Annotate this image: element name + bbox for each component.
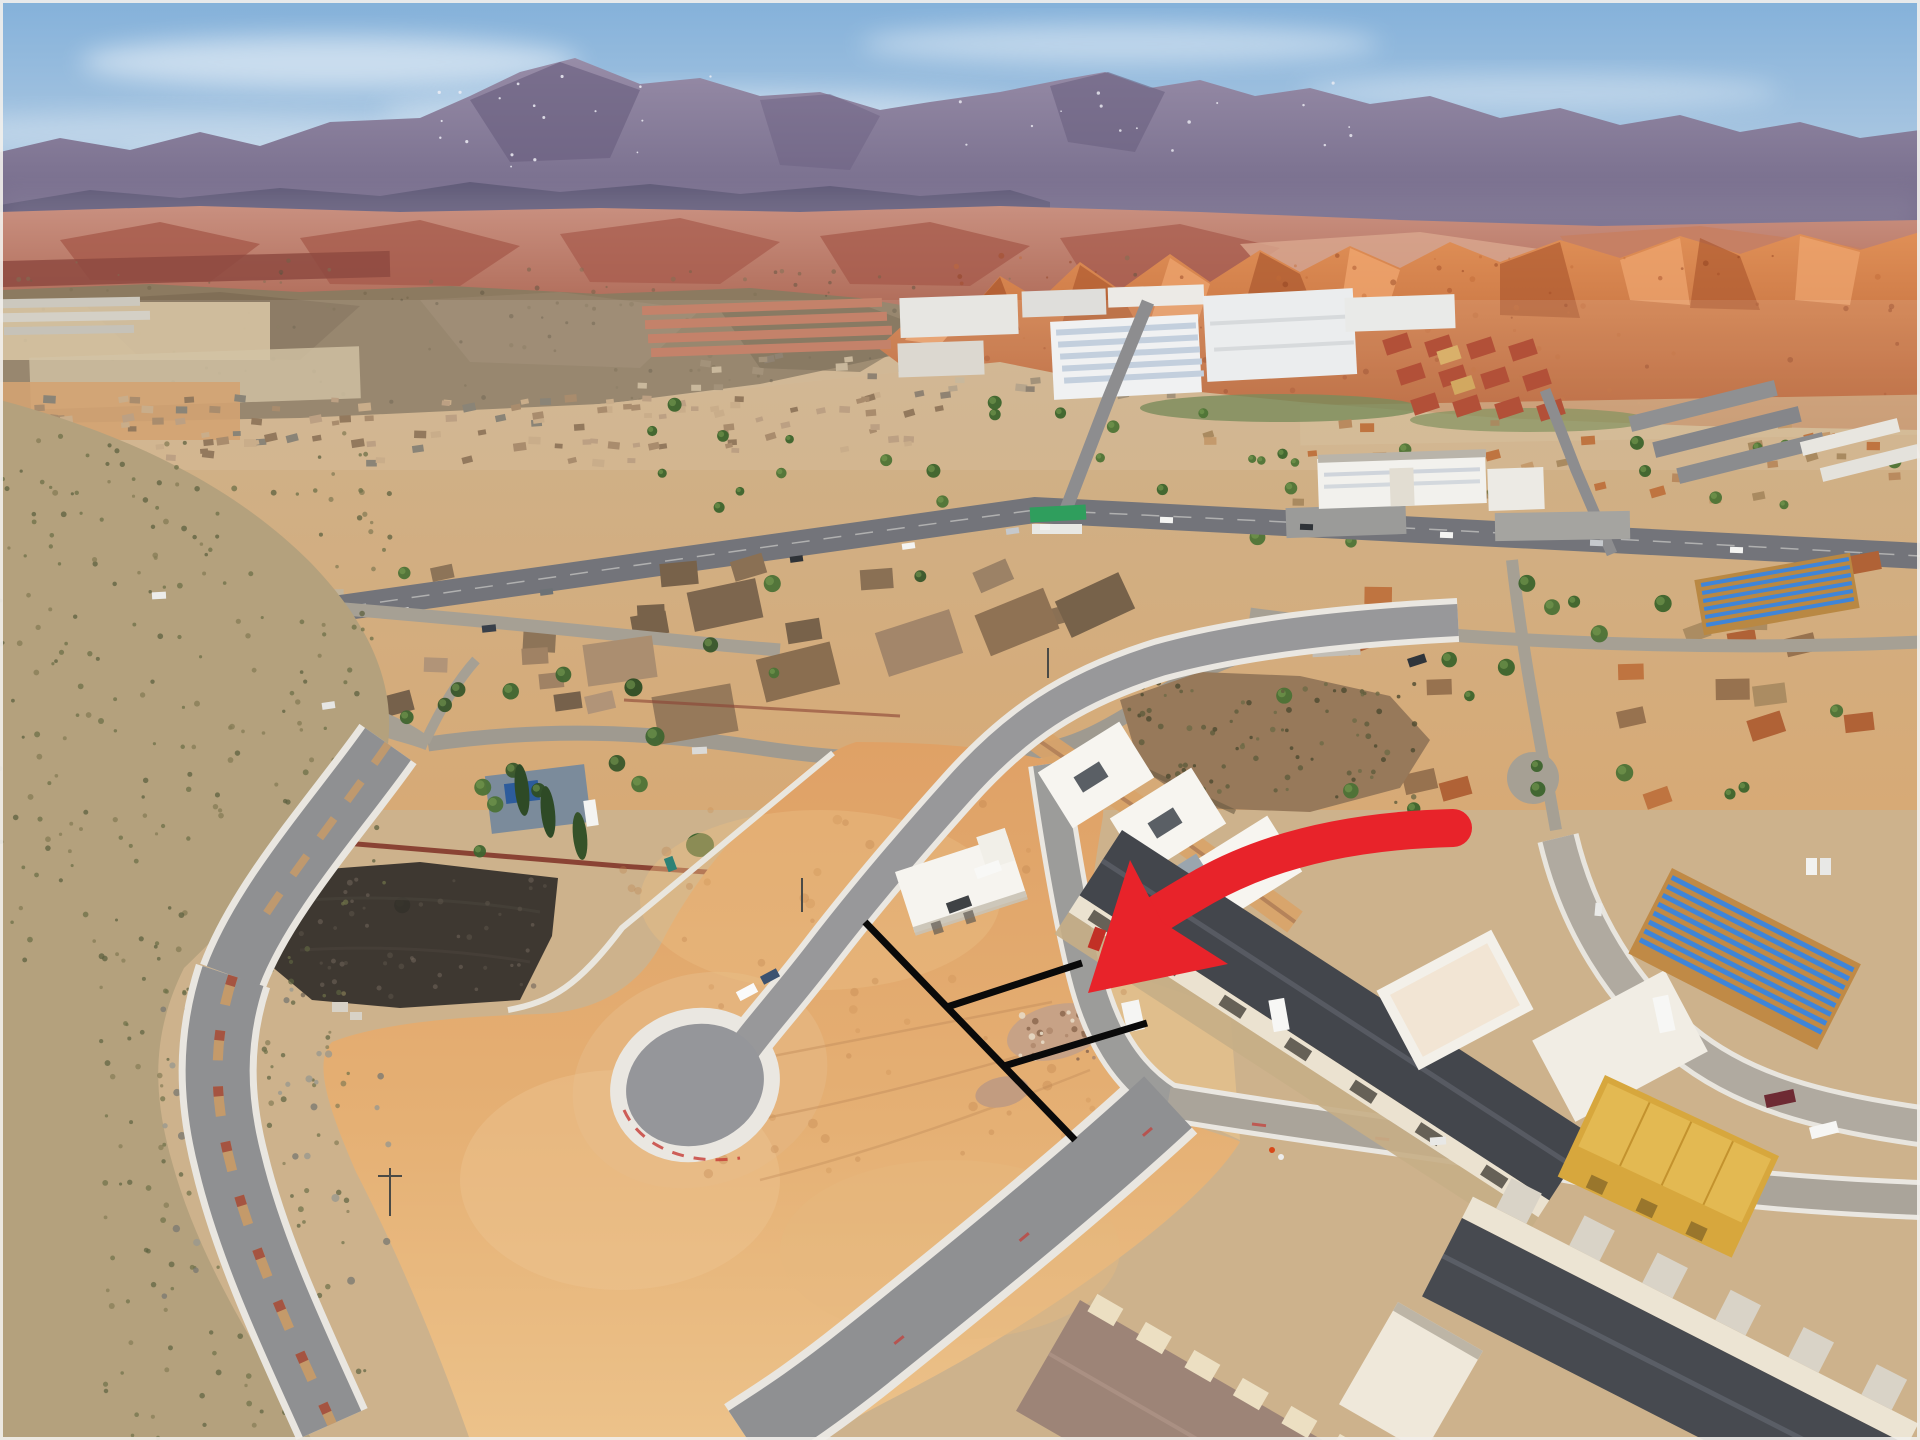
speckle xyxy=(743,277,747,281)
speckle xyxy=(1253,756,1259,762)
speckle xyxy=(193,1239,200,1246)
speckle xyxy=(143,778,148,783)
tree-highlight xyxy=(1408,804,1415,811)
speckle xyxy=(707,807,713,813)
speckle xyxy=(833,815,843,825)
speckle xyxy=(344,1198,349,1203)
speckle xyxy=(846,1053,852,1059)
speckle xyxy=(120,1371,123,1374)
speckle xyxy=(1095,271,1097,273)
speckle xyxy=(290,691,295,696)
speckle xyxy=(22,736,25,739)
speckle xyxy=(59,833,62,836)
speckle xyxy=(22,958,27,963)
speckle xyxy=(271,490,277,496)
speckle xyxy=(1324,144,1326,146)
speckle xyxy=(37,816,42,821)
tree-highlight xyxy=(475,846,481,852)
car xyxy=(1594,903,1602,917)
speckle xyxy=(510,153,513,156)
speckle xyxy=(1681,267,1684,270)
speckle xyxy=(160,1217,166,1223)
speckle xyxy=(433,984,438,989)
speckle xyxy=(286,259,290,263)
speckle xyxy=(1147,708,1152,713)
tree-highlight xyxy=(1500,661,1509,670)
house-roof xyxy=(836,363,848,371)
speckle xyxy=(58,434,63,439)
speckle xyxy=(99,1039,103,1043)
speckle xyxy=(245,633,250,638)
speckle xyxy=(121,958,125,962)
tree-highlight xyxy=(1158,485,1164,491)
house-roof xyxy=(759,357,768,363)
speckle xyxy=(382,548,386,552)
speckle xyxy=(79,512,82,515)
speckle xyxy=(1047,1064,1056,1073)
speckle xyxy=(110,1074,116,1080)
speckle xyxy=(102,956,108,962)
house-roof xyxy=(644,413,652,418)
speckle xyxy=(1549,292,1552,295)
speckle xyxy=(774,270,778,274)
speckle xyxy=(93,561,98,566)
speckle xyxy=(199,1393,205,1399)
speckle xyxy=(1352,718,1357,723)
speckle xyxy=(55,774,59,778)
speckle xyxy=(1190,689,1193,692)
house-roof xyxy=(659,561,698,588)
speckle xyxy=(826,1167,832,1173)
speckle xyxy=(336,990,341,995)
speckle xyxy=(166,1058,169,1061)
speckle xyxy=(342,431,346,435)
worker-person xyxy=(1278,1154,1284,1160)
speckle xyxy=(704,1169,713,1178)
speckle xyxy=(1164,694,1167,697)
tree-highlight xyxy=(648,427,653,432)
speckle xyxy=(1285,728,1289,732)
tree-highlight xyxy=(1780,501,1785,506)
house-roof xyxy=(860,568,894,591)
speckle xyxy=(328,497,333,502)
speckle xyxy=(59,878,63,882)
speckle xyxy=(113,817,118,822)
house-roof xyxy=(948,385,958,392)
speckle xyxy=(134,859,139,864)
tree-highlight xyxy=(770,669,775,674)
speckle xyxy=(1146,716,1152,722)
speckle xyxy=(304,1153,311,1160)
house-roof xyxy=(955,377,964,383)
speckle xyxy=(140,692,145,697)
speckle xyxy=(192,745,197,750)
speckle xyxy=(119,1182,122,1185)
house-roof xyxy=(528,437,540,445)
speckle xyxy=(1508,257,1510,259)
speckle xyxy=(1324,682,1328,686)
hotel-wing xyxy=(1487,467,1544,511)
speckle xyxy=(1371,770,1376,775)
house-roof xyxy=(752,367,764,375)
speckle xyxy=(347,1072,350,1075)
speckle xyxy=(374,1105,379,1110)
speckle xyxy=(288,979,294,985)
house-roof xyxy=(1026,386,1035,392)
tree-highlight xyxy=(1592,627,1601,636)
speckle xyxy=(805,899,815,909)
house-roof xyxy=(166,454,176,461)
speckle xyxy=(177,635,181,639)
cloud xyxy=(860,24,1380,64)
speckle xyxy=(382,881,386,885)
speckle xyxy=(160,1096,165,1101)
house-roof xyxy=(130,397,141,404)
house-roof xyxy=(203,439,214,446)
speckle xyxy=(1201,725,1206,730)
speckle xyxy=(1186,725,1192,731)
house-roof xyxy=(582,439,591,445)
speckle xyxy=(352,625,357,630)
speckle xyxy=(187,772,192,777)
speckle xyxy=(1140,711,1146,717)
speckle xyxy=(305,946,311,952)
speckle xyxy=(362,512,367,517)
speckle xyxy=(517,963,521,967)
speckle xyxy=(301,993,306,998)
speckle xyxy=(160,1006,166,1012)
house-roof xyxy=(521,647,548,665)
gas-station-store xyxy=(1032,524,1082,534)
speckle xyxy=(1270,727,1276,733)
speckle xyxy=(1070,1019,1074,1023)
speckle xyxy=(1364,721,1369,726)
speckle xyxy=(341,991,346,996)
speckle xyxy=(954,264,959,269)
house-roof xyxy=(376,457,386,463)
speckle xyxy=(148,590,151,593)
car xyxy=(1440,532,1453,538)
speckle xyxy=(24,554,27,557)
speckle xyxy=(113,697,117,701)
speckle xyxy=(391,298,393,300)
warehouse-large xyxy=(1203,288,1357,382)
speckle xyxy=(904,1018,910,1024)
speckle xyxy=(671,277,676,282)
speckle xyxy=(1370,775,1374,779)
speckle xyxy=(182,706,185,709)
tree-highlight xyxy=(718,431,724,437)
speckle xyxy=(452,879,455,882)
speckle xyxy=(244,1384,247,1387)
speckle xyxy=(328,966,332,970)
speckle xyxy=(634,887,642,895)
speckle xyxy=(322,623,326,627)
tree-highlight xyxy=(1249,456,1253,460)
tree-highlight xyxy=(1292,459,1296,463)
tree-highlight xyxy=(1443,653,1451,661)
speckle xyxy=(163,585,166,588)
speckle xyxy=(292,1153,298,1159)
speckle xyxy=(1209,779,1213,783)
house-roof xyxy=(714,384,723,390)
speckle xyxy=(218,808,222,812)
car xyxy=(482,624,497,632)
speckle xyxy=(327,268,331,272)
speckle xyxy=(322,632,326,636)
tree-highlight xyxy=(1532,761,1538,767)
speckle xyxy=(347,1277,355,1285)
warehouse xyxy=(897,341,984,378)
speckle xyxy=(51,662,54,665)
speckle xyxy=(366,893,370,897)
speckle xyxy=(429,280,433,284)
speckle xyxy=(179,912,185,918)
tree-highlight xyxy=(633,777,641,785)
speckle xyxy=(388,994,393,999)
tree-highlight xyxy=(476,780,484,788)
tree-highlight xyxy=(1831,706,1838,713)
tree-highlight xyxy=(669,399,676,406)
speckle xyxy=(36,754,42,760)
parking-lot xyxy=(1286,504,1407,538)
house-roof xyxy=(202,450,215,459)
speckle xyxy=(1140,693,1143,696)
tree-highlight xyxy=(1618,766,1627,775)
speckle xyxy=(1570,265,1573,268)
speckle xyxy=(686,883,693,890)
speckle xyxy=(1139,739,1145,745)
speckle xyxy=(5,486,10,491)
speckle xyxy=(264,1050,268,1054)
speckle xyxy=(531,923,535,927)
speckle xyxy=(855,1028,860,1033)
speckle xyxy=(216,512,220,516)
speckle xyxy=(1065,1034,1068,1037)
speckle xyxy=(202,571,206,575)
speckle xyxy=(147,286,151,290)
concrete-pad xyxy=(332,1002,348,1012)
speckle xyxy=(187,1191,192,1196)
speckle xyxy=(120,462,125,467)
speckle xyxy=(1076,1057,1079,1060)
speckle xyxy=(104,1215,108,1219)
speckle xyxy=(484,926,489,931)
speckle xyxy=(194,486,199,491)
speckle xyxy=(1397,695,1401,699)
house-roof xyxy=(1338,419,1352,429)
speckle xyxy=(1221,764,1225,768)
speckle xyxy=(1347,770,1352,775)
tree-highlight xyxy=(1400,445,1406,451)
house-roof xyxy=(1308,450,1318,456)
house-roof xyxy=(366,441,376,447)
house-roof xyxy=(414,430,426,438)
speckle xyxy=(347,667,352,672)
speckle xyxy=(1703,260,1709,266)
speckle xyxy=(1314,698,1319,703)
speckle xyxy=(526,948,530,952)
tree-highlight xyxy=(1711,493,1717,499)
speckle xyxy=(104,1389,109,1394)
speckle xyxy=(248,571,253,576)
speckle xyxy=(299,931,304,936)
speckle xyxy=(912,286,916,290)
house-roof xyxy=(574,424,585,431)
speckle xyxy=(1412,682,1416,686)
speckle xyxy=(216,1266,219,1269)
speckle xyxy=(228,757,234,763)
speckle xyxy=(340,962,345,967)
speckle xyxy=(285,1082,290,1087)
house-roof xyxy=(730,402,740,408)
speckle xyxy=(194,701,200,707)
speckle xyxy=(1040,1032,1043,1035)
house-roof xyxy=(731,448,739,453)
speckle xyxy=(325,1050,332,1057)
car xyxy=(1730,547,1743,553)
house-roof xyxy=(597,406,607,413)
aerial-photo-listing-image xyxy=(0,0,1920,1440)
speckle xyxy=(261,616,264,619)
speckle xyxy=(758,959,766,967)
speckle xyxy=(69,288,72,291)
speckle xyxy=(164,1308,168,1312)
speckle xyxy=(1069,261,1072,264)
speckle xyxy=(850,988,858,996)
speckle xyxy=(689,270,692,273)
speckle xyxy=(753,293,756,296)
speckle xyxy=(83,912,89,918)
speckle xyxy=(300,670,304,674)
speckle xyxy=(16,277,21,282)
speckle xyxy=(112,582,116,586)
speckle xyxy=(59,650,64,655)
speckle xyxy=(157,1073,163,1079)
house-roof xyxy=(712,366,722,373)
speckle xyxy=(157,480,162,485)
speckle xyxy=(236,619,241,624)
speckle xyxy=(274,782,278,786)
speckle xyxy=(119,835,123,839)
speckle xyxy=(169,1062,175,1068)
speckle xyxy=(154,945,158,949)
speckle xyxy=(349,911,355,917)
speckle xyxy=(331,472,335,476)
speckle xyxy=(1298,765,1303,770)
speckle xyxy=(331,959,336,964)
speckle xyxy=(331,1194,339,1202)
speckle xyxy=(1332,82,1335,85)
speckle xyxy=(377,1073,384,1080)
speckle xyxy=(1365,733,1371,739)
house-roof xyxy=(1360,423,1374,432)
tree-highlight xyxy=(399,568,405,574)
car xyxy=(1160,517,1173,523)
speckle xyxy=(1097,91,1100,94)
speckle xyxy=(1071,1026,1077,1032)
speckle xyxy=(28,794,34,800)
speckle xyxy=(48,607,52,611)
speckle xyxy=(1349,134,1352,137)
speckle xyxy=(290,1194,294,1198)
speckle xyxy=(520,983,523,986)
speckle xyxy=(105,462,109,466)
speckle xyxy=(1241,700,1245,704)
speckle xyxy=(314,1080,319,1085)
speckle xyxy=(1384,749,1390,755)
speckle xyxy=(140,1030,145,1035)
house-roof xyxy=(1837,453,1847,459)
speckle xyxy=(959,100,962,103)
tree-highlight xyxy=(659,470,664,475)
tree-highlight xyxy=(452,684,459,691)
speckle xyxy=(580,268,584,272)
speckle xyxy=(1494,263,1498,267)
speckle xyxy=(810,919,815,924)
speckle xyxy=(410,956,414,960)
speckle xyxy=(155,832,158,835)
speckle xyxy=(34,873,39,878)
speckle xyxy=(246,1401,252,1407)
speckle xyxy=(1046,1027,1053,1034)
speckle xyxy=(183,441,187,445)
house-roof xyxy=(1752,682,1787,706)
speckle xyxy=(129,1120,133,1124)
cream-building xyxy=(1339,1302,1483,1440)
speckle xyxy=(828,291,830,293)
speckle xyxy=(218,813,224,819)
speckle xyxy=(335,1104,340,1109)
speckle xyxy=(1066,1010,1070,1014)
speckle xyxy=(175,482,179,486)
speckle xyxy=(283,997,289,1003)
tree-highlight xyxy=(1532,783,1540,791)
house-roof xyxy=(638,383,647,389)
speckle xyxy=(535,286,540,291)
house-roof xyxy=(152,417,164,424)
speckle xyxy=(153,742,156,745)
tree-highlight xyxy=(1286,483,1292,489)
tree-highlight xyxy=(401,712,408,719)
speckle xyxy=(798,272,802,276)
house-roof xyxy=(1426,679,1452,695)
speckle xyxy=(357,515,362,520)
speckle xyxy=(1311,758,1314,761)
speckle xyxy=(267,1123,272,1128)
house-roof xyxy=(366,460,377,467)
speckle xyxy=(118,1144,122,1148)
speckle xyxy=(335,565,339,569)
house-roof xyxy=(141,406,153,414)
speckle xyxy=(320,962,323,965)
speckle xyxy=(127,1036,131,1040)
speckle xyxy=(114,729,117,732)
house-roof xyxy=(691,406,698,411)
speckle xyxy=(162,1293,168,1299)
speckle xyxy=(437,973,442,978)
house-roof xyxy=(442,400,450,406)
speckle xyxy=(878,275,881,278)
speckle xyxy=(132,477,136,481)
speckle xyxy=(1230,720,1233,723)
tree-highlight xyxy=(777,469,782,474)
speckle xyxy=(1717,273,1720,276)
speckle xyxy=(47,781,51,785)
speckle xyxy=(1027,1027,1031,1031)
speckle xyxy=(637,152,639,154)
speckle xyxy=(371,567,376,572)
